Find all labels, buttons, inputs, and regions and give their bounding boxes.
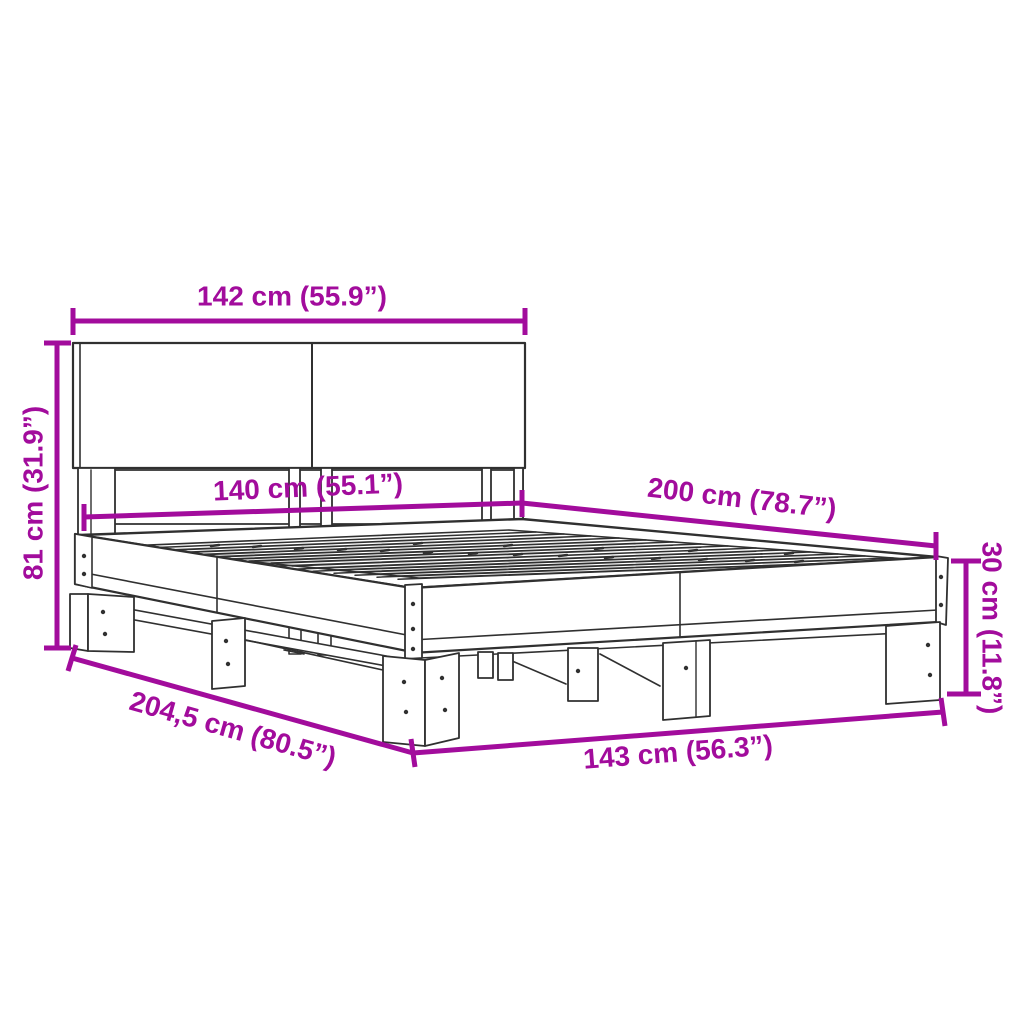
bed-frame-drawing	[70, 343, 948, 746]
headboard-height-label: 81 cm (31.9”)	[18, 406, 49, 580]
total-length-label: 204,5 cm (80.5”)	[126, 685, 340, 773]
dim-line-headboard-width	[73, 308, 525, 335]
headboard	[73, 343, 525, 468]
frame-height-label: 30 cm (11.8”)	[977, 542, 1008, 715]
headboard-width-label: 142 cm (55.9”)	[197, 281, 387, 312]
dim-line-frame-height	[947, 561, 981, 694]
slat-area-width-label: 140 cm (55.1”)	[212, 467, 403, 506]
diagram-canvas: 142 cm (55.9”) 81 cm (31.9”) 140 cm (55.…	[0, 0, 1024, 1024]
bed-dimension-diagram: 142 cm (55.9”) 81 cm (31.9”) 140 cm (55.…	[0, 0, 1024, 1024]
